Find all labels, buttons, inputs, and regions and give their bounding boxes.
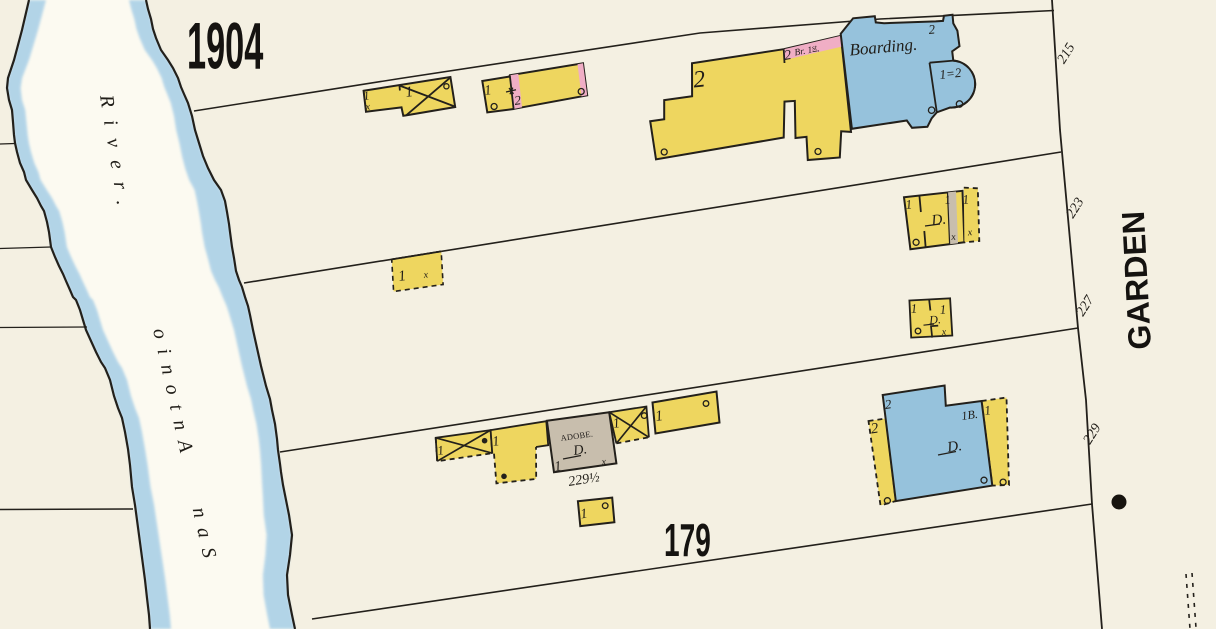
svg-text:GARDEN: GARDEN [1115, 210, 1158, 350]
svg-text:1: 1 [910, 301, 918, 316]
svg-text:1=2: 1=2 [939, 65, 963, 82]
svg-text:1B.: 1B. [960, 407, 978, 423]
svg-text:179: 179 [664, 516, 711, 567]
svg-text:D.: D. [930, 212, 947, 230]
svg-text:1904: 1904 [187, 10, 263, 84]
